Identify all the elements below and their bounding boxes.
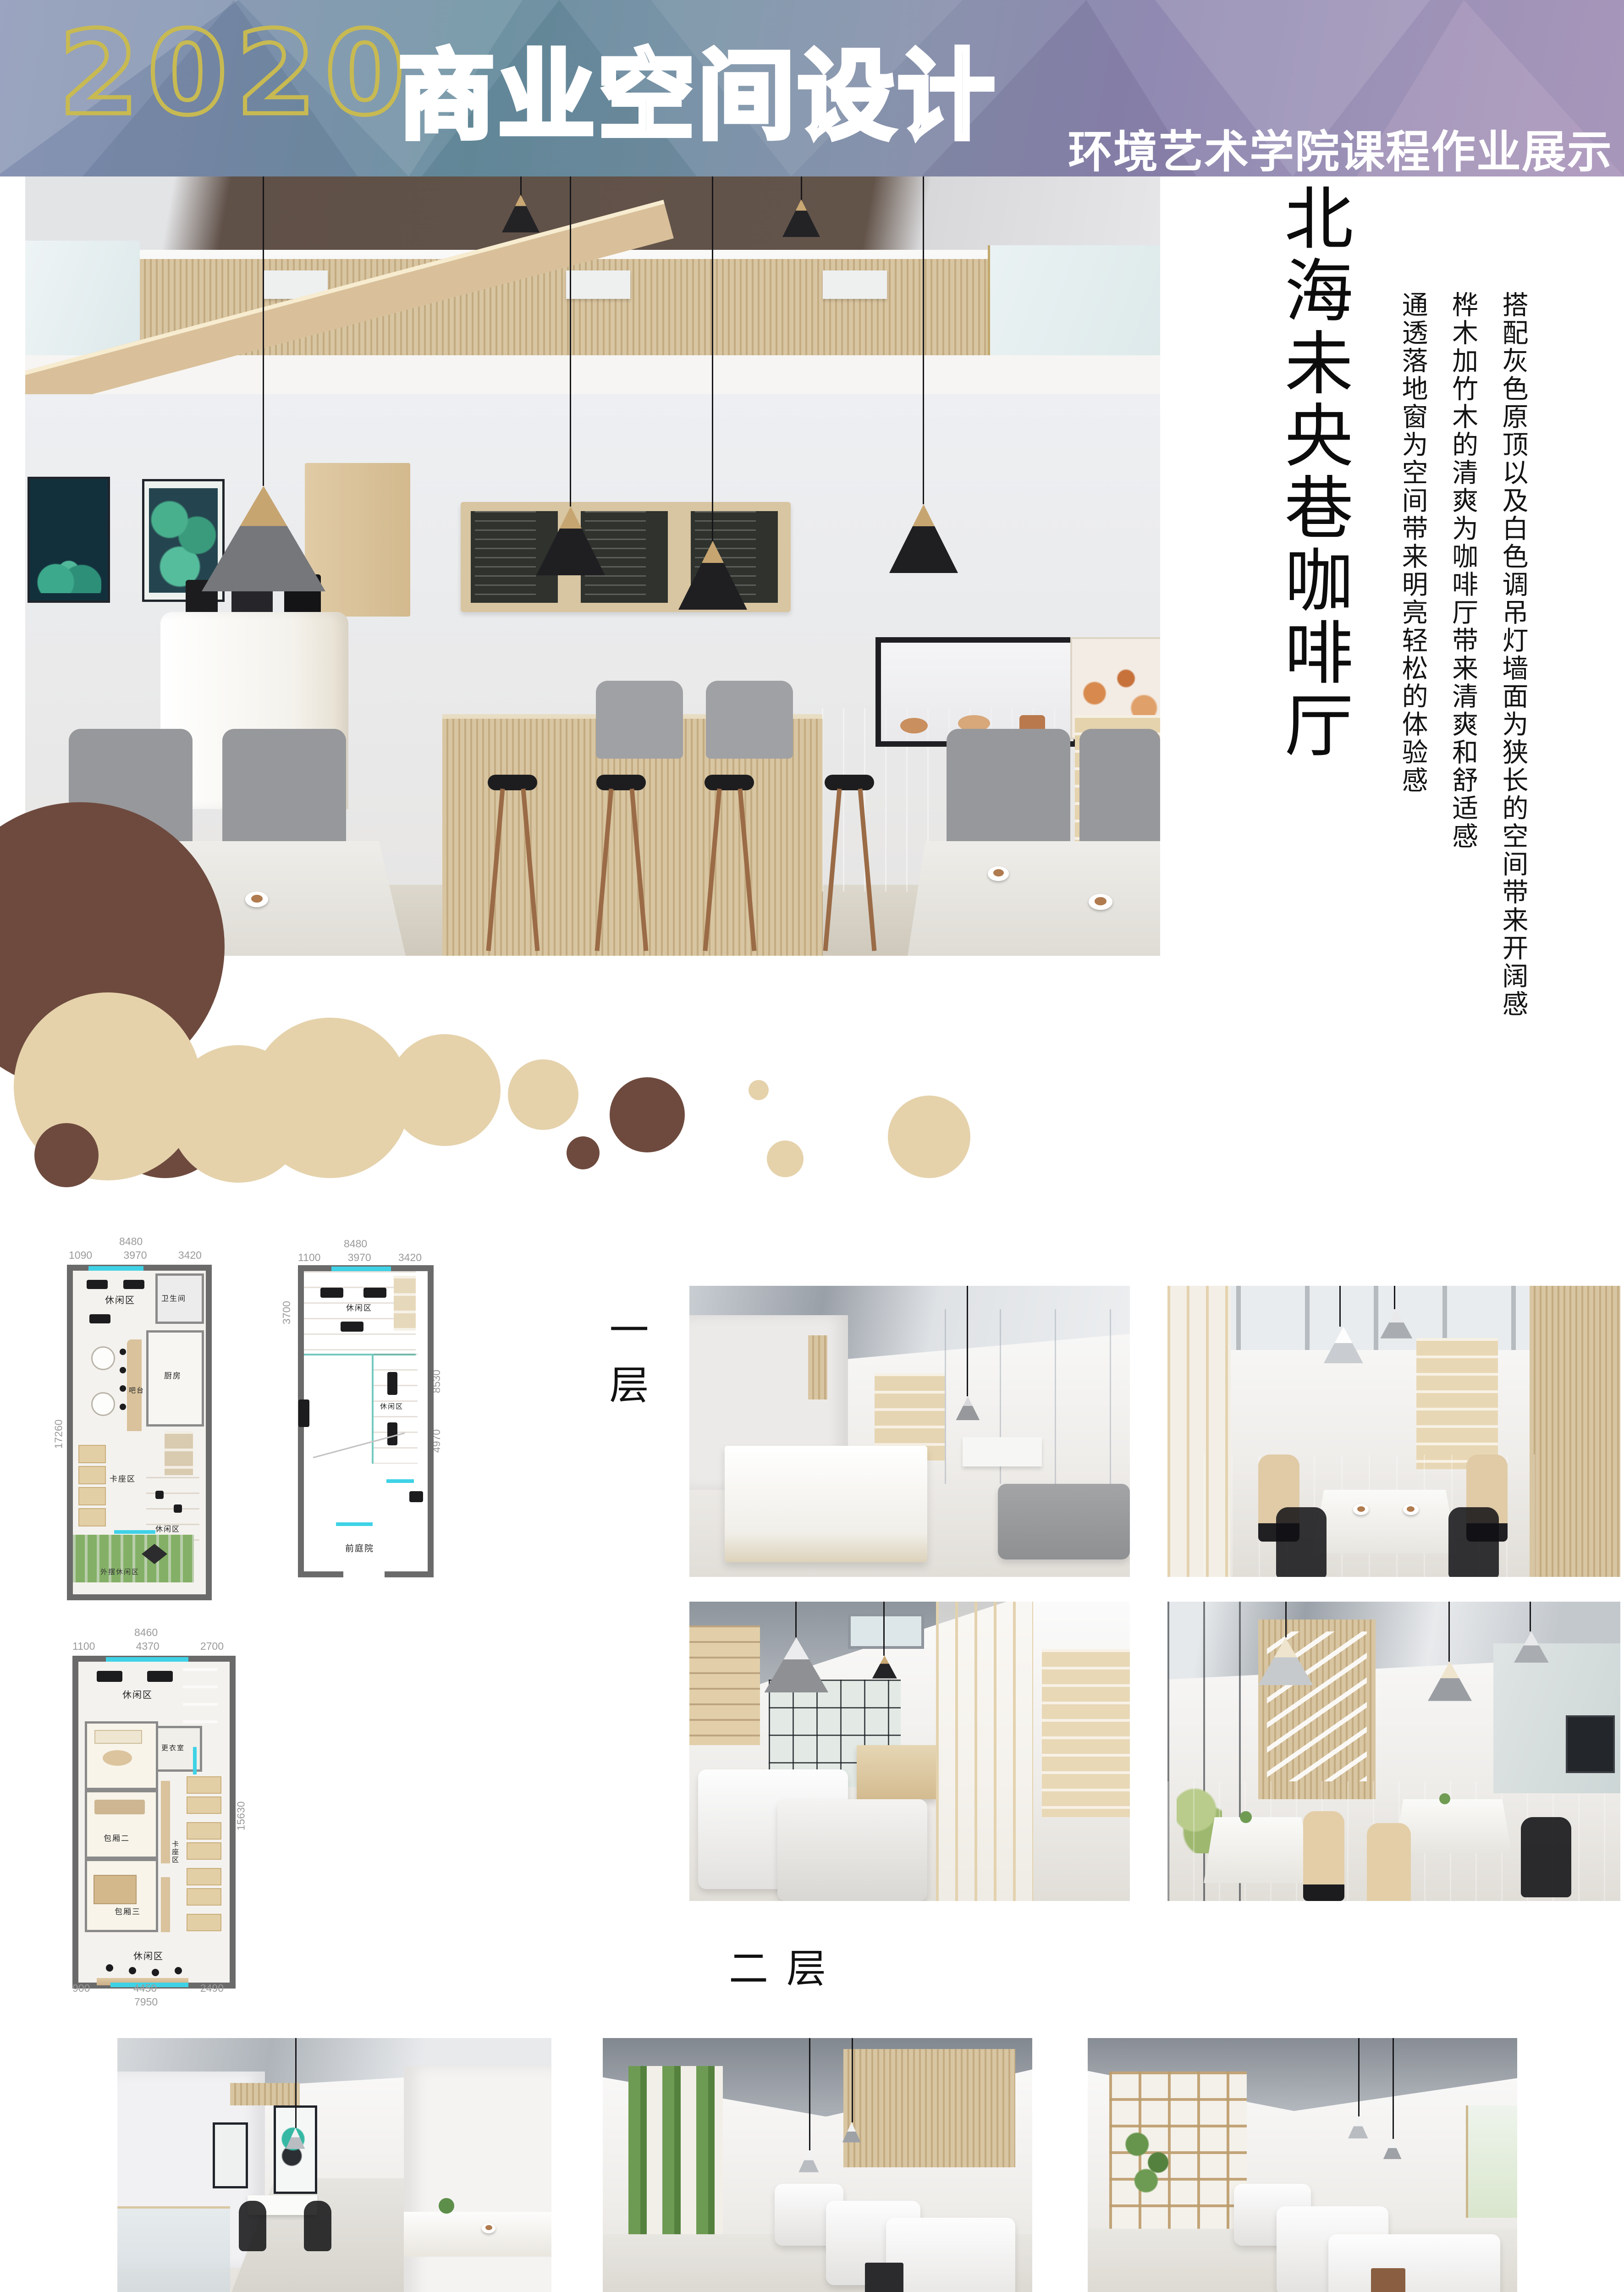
poster-art (36, 539, 102, 593)
dimension-label: 15630 (235, 1802, 248, 1831)
wall-art (213, 2122, 248, 2189)
floor-plan-1: 8480 1090 3970 3420 17260 休闲区 卫生间 吧台 (50, 1235, 219, 1618)
lamp-cord (967, 1286, 968, 1396)
project-description: 搭配灰色原顶以及白色调吊灯墙面为狭长的空间带来开阔感 桦木加竹木的清爽为咖啡厅带… (1387, 291, 1538, 1052)
lamp-cord (712, 176, 713, 541)
pendant-lamp-icon (1428, 1662, 1472, 1701)
floor1-render-reception (689, 1286, 1130, 1577)
plan-room-label: 休闲区 (105, 1293, 135, 1306)
plan-window (114, 1530, 155, 1534)
vertical-rod-screen (936, 1602, 1033, 1901)
dimension-label: 3970 (123, 1249, 147, 1262)
floor2-render-corridor (117, 2038, 551, 2292)
background-stairs (1416, 1338, 1498, 1469)
wall-right (404, 2066, 551, 2292)
wood-pillow (1371, 2268, 1405, 2292)
mezzanine-table (823, 270, 887, 299)
floor1-render-dining2 (1167, 1602, 1620, 1901)
tv-screen (1566, 1715, 1615, 1773)
decorative-circle-brown (34, 1123, 99, 1187)
plan-window (331, 1267, 391, 1271)
floor2-render-greenwall (603, 2038, 1032, 2292)
bar-stool (823, 775, 878, 956)
plan-booths (187, 1776, 221, 1794)
background-table-chairs (963, 1437, 1042, 1466)
description-paragraph: 通透落地窗为空间带来明亮轻松的体验感 (1387, 291, 1437, 1052)
lamp-cord (1448, 1602, 1450, 1662)
plan-booths (187, 1868, 221, 1885)
dimension-label: 2490 (200, 1982, 224, 1994)
gray-sofa (998, 1484, 1130, 1559)
shelf-plants (1122, 2122, 1182, 2195)
wood-band-upper (230, 2083, 300, 2105)
pastry (900, 718, 928, 733)
plan-long-bench (161, 1877, 170, 1932)
plant-pot (1439, 1793, 1450, 1804)
decorative-circle-tan (767, 1140, 804, 1177)
lamp-cord (1285, 1602, 1287, 1637)
lamp-cord (1339, 1286, 1341, 1327)
pendant-lamp-icon (1348, 2116, 1368, 2138)
plan-room-label: 包厢三 (115, 1905, 141, 1917)
header-subtitle: 环境艺术学院课程作业展示 (1068, 116, 1613, 176)
dimension-label: 1100 (72, 1640, 95, 1653)
dining-chair (304, 2201, 331, 2251)
plan-wc-room: 卫生间 (155, 1273, 204, 1324)
plan-window (193, 1747, 197, 1774)
plan-booths (78, 1445, 106, 1463)
armchair (596, 681, 683, 759)
plan-stairs (183, 1668, 218, 1723)
section-label-floor1: 一层 (597, 1309, 654, 1419)
lamp-cord (801, 176, 802, 202)
dimension-label: 8480 (344, 1238, 367, 1250)
dimension-label: 4450 (133, 1982, 157, 1994)
plant-wall-panels (628, 2066, 723, 2240)
pendant-lamp-icon (1383, 2139, 1402, 2159)
lamp-cord (1393, 2038, 1394, 2139)
plan-room-label: 更衣室 (161, 1743, 185, 1752)
plant-pot (1240, 1811, 1252, 1823)
plan-room-label: 卡座区 (110, 1472, 136, 1484)
side-table (865, 2263, 903, 2292)
wall-sign-slats (808, 1335, 827, 1399)
plan-void-line (313, 1363, 405, 1528)
poster-page: 2020 商业空间设计 环境艺术学院课程作业展示 (0, 0, 1624, 2292)
dimension-label: 8480 (119, 1235, 143, 1248)
floor1-render-dining (1167, 1286, 1620, 1577)
dining-chair (1448, 1507, 1499, 1577)
pendant-lamp-icon (872, 1656, 897, 1679)
dimension-label: 1100 (298, 1251, 320, 1264)
chalkboard-menu (471, 511, 558, 603)
plan-stairs (394, 1276, 416, 1331)
bar-stool (486, 775, 541, 956)
decorative-circle-brown (610, 1077, 685, 1152)
white-sofa (777, 1799, 927, 1901)
window-right (1466, 2105, 1517, 2218)
lamp-cord (1394, 1286, 1395, 1309)
decorative-circle-tan (749, 1080, 769, 1100)
white-sofa (886, 2218, 1015, 2292)
plan-room-label: 休闲区 (155, 1523, 180, 1534)
dining-chair (1303, 1811, 1344, 1901)
white-table (1204, 1817, 1312, 1883)
lamp-cord (263, 176, 264, 486)
plan-private-room-1 (85, 1721, 158, 1790)
plan-kitchen-room: 厨房 (146, 1330, 204, 1427)
plan-room-label: 休闲区 (122, 1687, 153, 1701)
dimension-label: 17260 (52, 1420, 65, 1449)
armchair (947, 729, 1070, 853)
bar-counter (857, 1745, 936, 1799)
armchair (1079, 729, 1160, 853)
skylight (848, 1614, 924, 1649)
plan-door-block (409, 1491, 423, 1502)
bar-stool (595, 775, 650, 956)
dining-chair (1521, 1817, 1571, 1897)
side-counter (404, 2212, 551, 2257)
header-title: 商业空间设计 (398, 17, 997, 158)
lamp-cord (520, 176, 522, 197)
decorative-circle-tan (888, 1096, 970, 1178)
poster-art (149, 488, 218, 592)
dimension-label: 900 (72, 1982, 90, 1994)
menu-board-panel (461, 502, 791, 612)
plan-room-label: 厨房 (164, 1369, 182, 1381)
lamp-cord (570, 176, 571, 507)
plan-booths (187, 1914, 221, 1931)
dimension-label: 3970 (348, 1251, 371, 1264)
floor-plan-3: 8460 1100 4370 2700 15630 休闲区 更衣室 包厢二 (54, 1626, 242, 2011)
plan-window (88, 1266, 143, 1271)
coffee-cup-icon (988, 866, 1009, 881)
plan-booths (187, 1822, 221, 1840)
header-year: 2020 (59, 6, 413, 141)
bar-stool (703, 775, 758, 956)
plan-booths (78, 1508, 106, 1526)
plan-window (336, 1522, 373, 1526)
lamp-cord (809, 2038, 810, 2150)
plan-booths (78, 1487, 106, 1505)
coffee-cup-icon (1403, 1504, 1419, 1515)
dimension-label: 7950 (134, 1996, 158, 2008)
pendant-lamp-icon (798, 2150, 819, 2172)
dimension-label: 3420 (398, 1251, 422, 1264)
plan-round-table (91, 1392, 115, 1416)
lamp-cord (883, 1602, 885, 1656)
plan-window (106, 1657, 188, 1662)
plan-window (386, 1479, 414, 1483)
description-paragraph: 桦木加竹木的清爽为咖啡厅带来清爽和舒适感 (1437, 291, 1487, 1052)
dimension-label: 2700 (200, 1640, 224, 1653)
plan-private-room-3: 包厢三 (85, 1859, 158, 1932)
decorative-circle-tan (250, 1018, 410, 1178)
plan-booths (78, 1466, 106, 1484)
lamp-cord (852, 2038, 853, 2122)
background-stairs (1042, 1649, 1130, 1817)
poster-cactus (28, 477, 110, 603)
cafe-table (908, 841, 1160, 956)
floor2-render-shelflounge (1088, 2038, 1517, 2292)
plan-entry-gap (343, 1571, 385, 1577)
decorative-circle-tan (508, 1059, 578, 1130)
lamp-cord (295, 2038, 297, 2128)
plan-booths (187, 1888, 221, 1906)
plan-stairs (165, 1431, 193, 1475)
section-label-floor2: 二层 (729, 1936, 844, 1994)
dimension-label: 1090 (69, 1249, 92, 1262)
plan-room-label: 卡座区 (170, 1840, 180, 1864)
plan-booths (187, 1842, 221, 1860)
plan-door-block (298, 1399, 309, 1427)
decorative-circle-tan (389, 1034, 501, 1146)
plan-room-label: 休闲区 (133, 1949, 164, 1962)
dimension-label: 8460 (134, 1626, 158, 1639)
plan-room-label: 外摆休闲区 (100, 1567, 139, 1576)
dimension-label: 3420 (178, 1249, 202, 1262)
main-cafe-render (25, 176, 1160, 956)
header-banner: 2020 商业空间设计 环境艺术学院课程作业展示 (0, 0, 1624, 176)
floor-plan-2: 8480 1100 3970 3420 3700 8530 4970 休闲区 休… (284, 1238, 435, 1591)
wood-slat-upper (843, 2049, 1015, 2167)
plan-room-label: 休闲区 (346, 1301, 372, 1313)
lamp-cord (923, 176, 924, 504)
description-paragraph: 搭配灰色原顶以及白色调吊灯墙面为狭长的空间带来开阔感 (1488, 291, 1538, 1052)
white-sofa (1328, 2234, 1500, 2292)
lamp-cord (1358, 2038, 1360, 2116)
plan-long-bench (161, 1781, 170, 1863)
plan-room-label: 卫生间 (161, 1292, 186, 1303)
wood-shelf-band (689, 1625, 760, 1745)
dining-chair (1276, 1507, 1327, 1577)
lamp-cord (1530, 1602, 1531, 1631)
plan-booths (187, 1796, 221, 1814)
dining-chair (1367, 1823, 1411, 1901)
white-table (1394, 1799, 1512, 1853)
plan-room-label: 包厢二 (104, 1832, 130, 1843)
floor1-render-lounge (689, 1602, 1130, 1901)
plan-room-label: 前庭院 (345, 1542, 374, 1554)
dimension-label: 4370 (136, 1640, 160, 1653)
plan-private-room-2: 包厢二 (85, 1790, 158, 1859)
dining-chair (239, 2201, 266, 2251)
plant-pot (439, 2198, 454, 2214)
decorative-circle-brown (567, 1136, 600, 1169)
reception-counter (725, 1446, 927, 1562)
armchair (706, 681, 793, 759)
mezzanine-glass-right (988, 245, 1160, 367)
plan-round-table (91, 1346, 115, 1370)
armchair (222, 729, 346, 853)
coffee-cup-icon (1089, 894, 1112, 910)
plan-room-label: 吧台 (129, 1385, 144, 1395)
white-table (1312, 1490, 1457, 1554)
mezzanine-table (566, 270, 630, 299)
glass-rail (117, 2206, 230, 2292)
lamp-cord (795, 1602, 797, 1637)
coffee-cup-icon (245, 892, 268, 907)
dimension-label: 3700 (281, 1301, 293, 1324)
project-title-vertical: 北海未央巷咖啡厅 (1278, 182, 1347, 778)
